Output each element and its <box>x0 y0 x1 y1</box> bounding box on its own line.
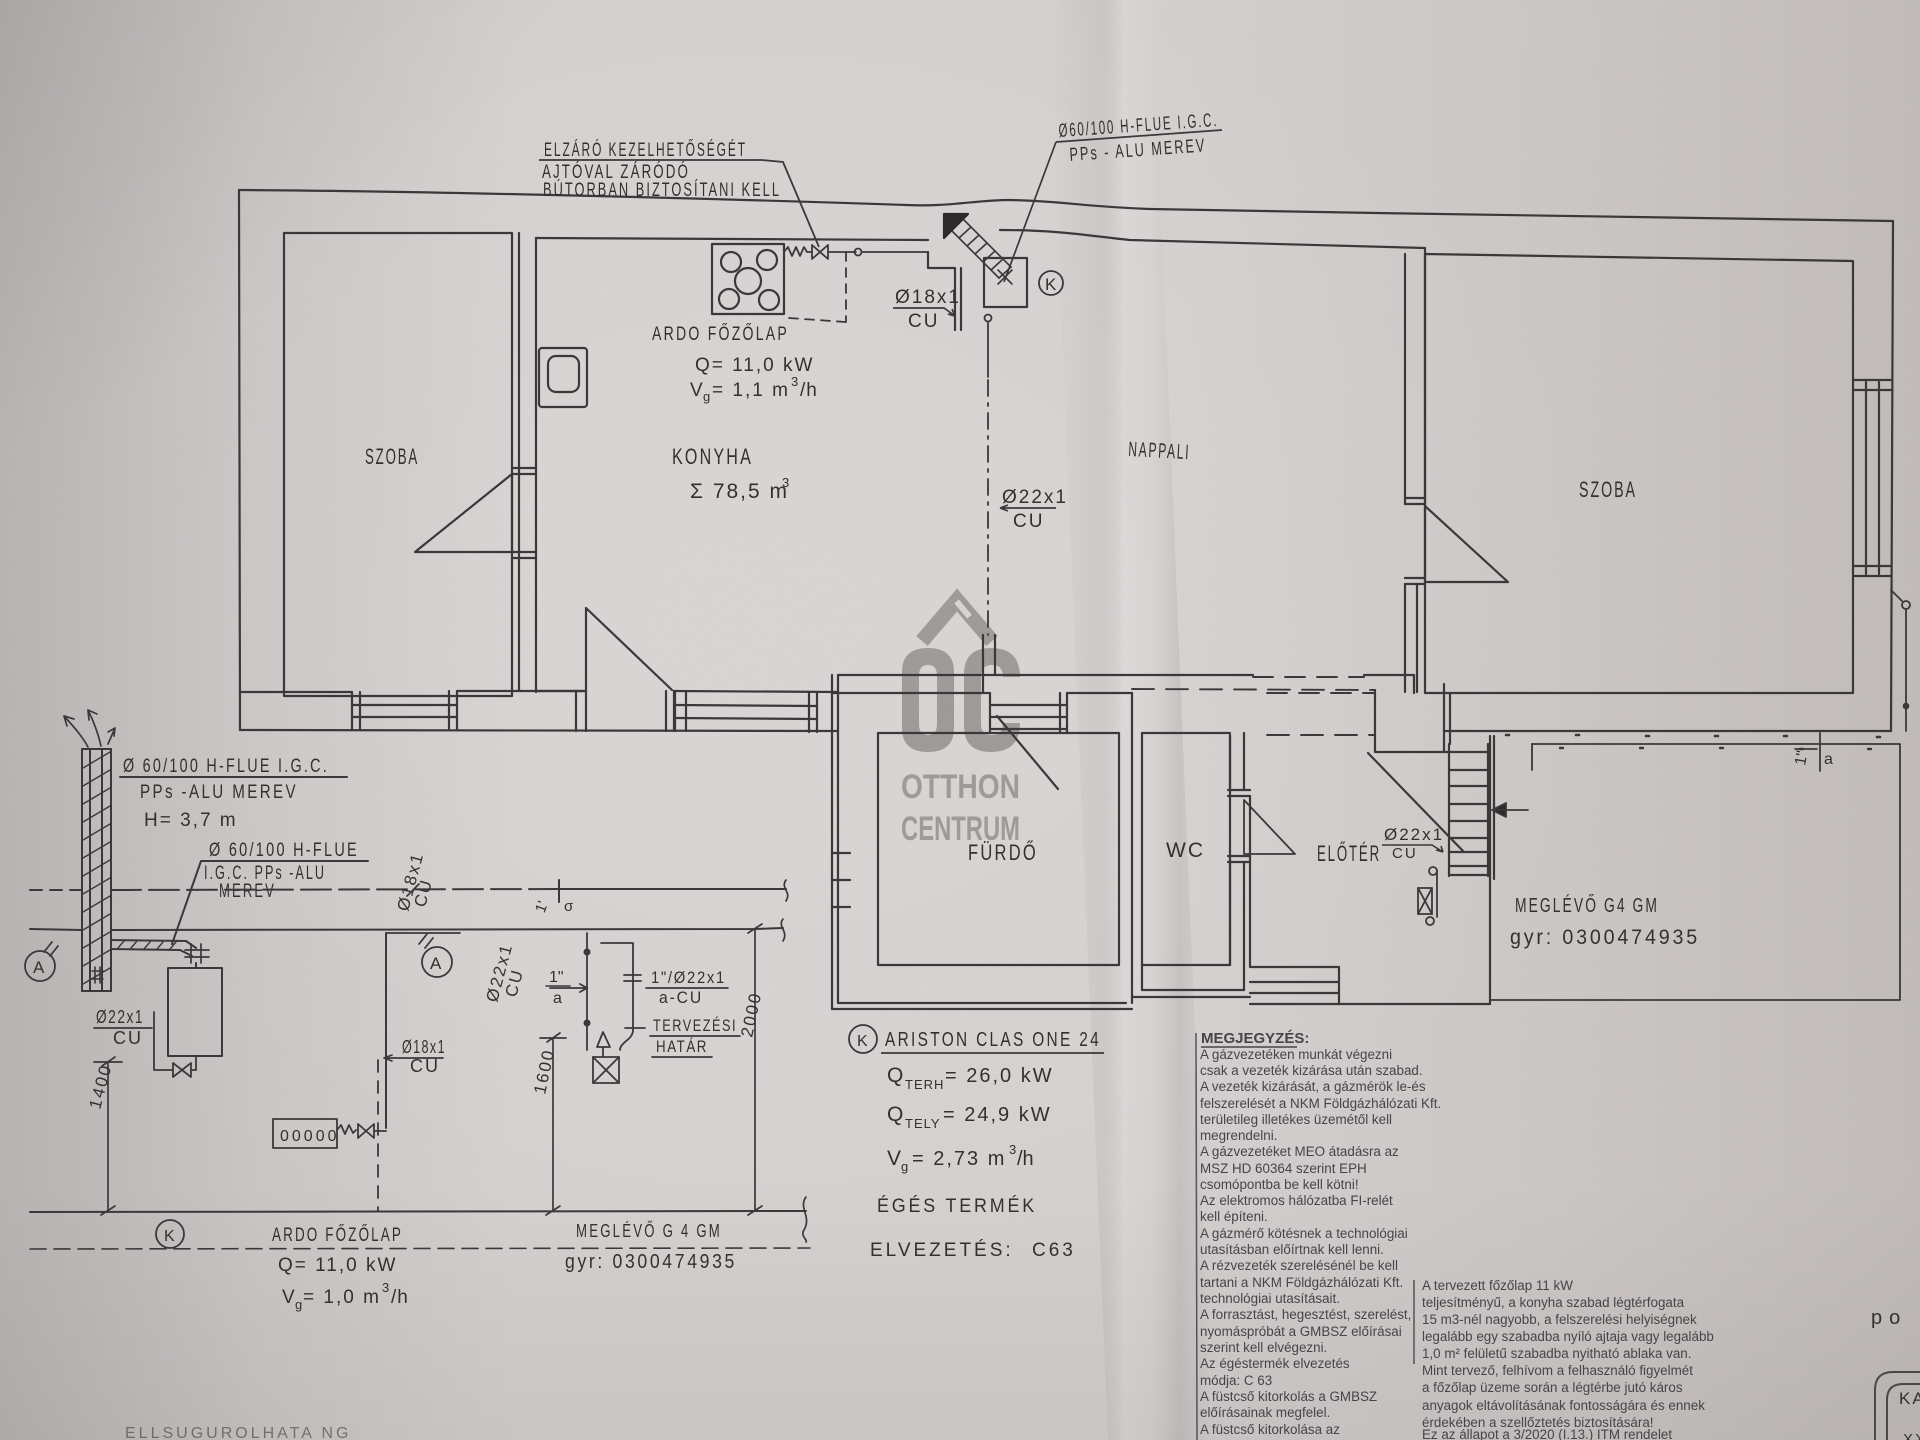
svg-text:po: po <box>1871 1307 1907 1329</box>
svg-text:CU: CU <box>908 311 939 332</box>
svg-text:Ø18x1: Ø18x1 <box>402 1037 446 1057</box>
svg-text:szerint kell elvégezni.: szerint kell elvégezni. <box>1200 1340 1327 1355</box>
svg-text:ARDO FŐZŐLAP: ARDO FŐZŐLAP <box>652 323 789 345</box>
svg-text:A: A <box>430 954 442 973</box>
svg-text:SZOBA: SZOBA <box>365 444 419 469</box>
svg-text:módja: C 63: módja: C 63 <box>1200 1373 1272 1388</box>
svg-text:CU: CU <box>410 1056 440 1076</box>
svg-text:A tervezett főzőlap 11 kW: A tervezett főzőlap 11 kW <box>1422 1278 1573 1293</box>
svg-text:Mint tervező, felhívom a felha: Mint tervező, felhívom a felhasználó fig… <box>1422 1363 1693 1378</box>
svg-text:A gázvezetéken munkát végezni: A gázvezetéken munkát végezni <box>1200 1047 1392 1062</box>
svg-text:A forrasztást, hegesztést, sze: A forrasztást, hegesztést, szerelést, <box>1200 1307 1411 1322</box>
svg-text:CU: CU <box>113 1028 143 1048</box>
svg-text:ELLSUGUROLHATA NG: ELLSUGUROLHATA NG <box>125 1425 351 1440</box>
svg-text:A füstcső kitorkolása az: A füstcső kitorkolása az <box>1200 1422 1340 1437</box>
svg-text:K: K <box>1045 275 1057 294</box>
svg-text:legalább egy szabadba nyíló aj: legalább egy szabadba nyíló ajtaja vagy … <box>1422 1329 1714 1344</box>
svg-text:Ø 60/100 H-FLUE: Ø 60/100 H-FLUE <box>209 840 359 861</box>
svg-text:a főzőlap üzeme során a légtér: a főzőlap üzeme során a légtérbe jutó ká… <box>1422 1380 1683 1395</box>
svg-text:TERH: TERH <box>905 1077 944 1092</box>
svg-text:csomópontba be kell kötni!: csomópontba be kell kötni! <box>1200 1177 1359 1192</box>
svg-text:Az égéstermék elvezetés: Az égéstermék elvezetés <box>1200 1356 1350 1371</box>
svg-text:= 1,0 m: = 1,0 m <box>303 1287 381 1308</box>
svg-text:utasításban előírtnak kell len: utasításban előírtnak kell lenni. <box>1200 1242 1384 1257</box>
svg-text:1": 1" <box>549 969 564 986</box>
svg-text:σ: σ <box>564 898 574 915</box>
svg-text:/h: /h <box>1017 1148 1034 1170</box>
svg-text:A gázmérő kötésnek a technológ: A gázmérő kötésnek a technológiai <box>1200 1226 1408 1241</box>
svg-text:/h: /h <box>800 380 818 401</box>
svg-text:C63: C63 <box>1032 1240 1076 1261</box>
svg-text:H= 3,7 m: H= 3,7 m <box>144 810 238 831</box>
svg-text:= 26,0 kW: = 26,0 kW <box>945 1065 1054 1087</box>
svg-text:/h: /h <box>391 1287 409 1308</box>
svg-text:= 2,73 m: = 2,73 m <box>912 1148 1006 1170</box>
svg-text:területileg illetékes üzemétől: területileg illetékes üzemétől kell <box>1200 1112 1392 1127</box>
svg-text:1": 1" <box>1792 749 1811 766</box>
svg-text:Ø22x1: Ø22x1 <box>1002 487 1068 508</box>
svg-text:előírásainak megfelel.: előírásainak megfelel. <box>1200 1405 1330 1420</box>
svg-text:g: g <box>901 1159 908 1174</box>
svg-text:A rézvezeték szerelésénél be k: A rézvezeték szerelésénél be kell <box>1200 1258 1398 1273</box>
svg-text:ELŐTÉR: ELŐTÉR <box>1317 841 1381 866</box>
svg-text:Ø22x1: Ø22x1 <box>1384 825 1444 844</box>
svg-text:Ø 60/100 H-FLUE I.G.C.: Ø 60/100 H-FLUE I.G.C. <box>123 756 329 777</box>
svg-text:3: 3 <box>1009 1142 1016 1157</box>
svg-text:Σ 78,5 m: Σ 78,5 m <box>690 480 789 503</box>
svg-text:3: 3 <box>782 475 792 490</box>
svg-text:Az elektromos hálózatba FI-rel: Az elektromos hálózatba FI-relét <box>1200 1193 1393 1208</box>
svg-text:A füstcső kitorkolás a GMBSZ: A füstcső kitorkolás a GMBSZ <box>1200 1389 1377 1404</box>
svg-text:a-CU: a-CU <box>659 988 703 1007</box>
svg-text:KONYHA: KONYHA <box>672 444 753 469</box>
svg-text:OTTHON: OTTHON <box>901 768 1020 806</box>
svg-text:PPs -ALU MEREV: PPs -ALU MEREV <box>140 782 298 803</box>
svg-text:a: a <box>1824 751 1833 768</box>
svg-text:MEREV: MEREV <box>219 881 276 902</box>
svg-text:HATÁR: HATÁR <box>656 1037 708 1056</box>
svg-text:teljesítményű, a konyha szabad: teljesítményű, a konyha szabad légtérfog… <box>1422 1295 1685 1310</box>
svg-text:= 1,1 m: = 1,1 m <box>712 380 790 401</box>
svg-text:technológiai utasításait.: technológiai utasításait. <box>1200 1291 1340 1306</box>
svg-text:kell építeni.: kell építeni. <box>1200 1209 1268 1224</box>
svg-text:K: K <box>857 1033 868 1050</box>
svg-text:Q= 11,0 kW: Q= 11,0 kW <box>695 355 814 376</box>
svg-text:A gázvezetéket MEO átadásra az: A gázvezetéket MEO átadásra az <box>1200 1144 1399 1159</box>
svg-text:ELZÁRÓ KEZELHETŐSÉGÉT: ELZÁRÓ KEZELHETŐSÉGÉT <box>544 139 747 161</box>
svg-text:megrendelni.: megrendelni. <box>1200 1128 1277 1143</box>
svg-text:A: A <box>33 958 45 977</box>
svg-text:gyr: 0300474935: gyr: 0300474935 <box>565 1251 737 1273</box>
svg-text:XX: XX <box>1903 1431 1920 1440</box>
svg-text:tartani a NKM Földgázhálózati: tartani a NKM Földgázhálózati Kft. <box>1200 1275 1403 1290</box>
svg-text:WC: WC <box>1166 839 1205 862</box>
svg-text:ARISTON CLAS ONE 24: ARISTON CLAS ONE 24 <box>885 1029 1101 1051</box>
svg-text:= 24,9 kW: = 24,9 kW <box>943 1104 1052 1126</box>
svg-text:Ø22x1: Ø22x1 <box>96 1007 144 1027</box>
svg-text:K: K <box>164 1228 175 1245</box>
svg-text:ARDO FŐZŐLAP: ARDO FŐZŐLAP <box>272 1224 403 1246</box>
svg-text:Ø18x1: Ø18x1 <box>895 287 961 308</box>
svg-text:nyomáspróbát a GMBSZ előírásai: nyomáspróbát a GMBSZ előírásai <box>1200 1324 1402 1339</box>
svg-text:MEGJEGYZÉS:: MEGJEGYZÉS: <box>1201 1030 1309 1047</box>
svg-text:Q: Q <box>887 1103 905 1126</box>
svg-text:TERVEZÉSI: TERVEZÉSI <box>653 1016 737 1035</box>
svg-text:Ez az állapot a 3/2020 (I.13.): Ez az állapot a 3/2020 (I.13.) ITM rende… <box>1422 1427 1672 1440</box>
svg-text:CU: CU <box>1013 511 1044 532</box>
svg-text:gyr: 0300474935: gyr: 0300474935 <box>1510 926 1700 949</box>
svg-text:ELVEZETÉS:: ELVEZETÉS: <box>870 1240 1014 1261</box>
svg-text:SZOBA: SZOBA <box>1579 477 1637 502</box>
svg-text:BÚTORBAN BIZTOSÍTANI KELL: BÚTORBAN BIZTOSÍTANI KELL <box>543 179 781 201</box>
svg-text:Q: Q <box>887 1064 905 1087</box>
svg-text:MEGLÉVŐ G4 GM: MEGLÉVŐ G4 GM <box>1515 894 1659 917</box>
svg-text:MEGLÉVŐ G 4 GM: MEGLÉVŐ G 4 GM <box>576 1220 722 1241</box>
svg-text:NAPPALI: NAPPALI <box>1128 438 1191 464</box>
svg-text:A vezeték kizárását, a gázmérö: A vezeték kizárását, a gázmérök le-és <box>1200 1079 1426 1094</box>
svg-text:a: a <box>553 990 562 1007</box>
svg-text:Q= 11,0 kW: Q= 11,0 kW <box>278 1255 397 1276</box>
svg-text:MSZ HD 60364 szerint EPH: MSZ HD 60364 szerint EPH <box>1200 1161 1367 1176</box>
svg-text:15 m3-nél nagyobb, a felszerel: 15 m3-nél nagyobb, a felszerelési helyis… <box>1422 1312 1697 1327</box>
svg-text:csak a vezeték kizárása után s: csak a vezeték kizárása után szabad. <box>1200 1063 1423 1078</box>
svg-text:1"/Ø22x1: 1"/Ø22x1 <box>651 968 726 987</box>
svg-text:anyagok eltávolításának fontos: anyagok eltávolításának fontosságára és … <box>1422 1398 1705 1413</box>
svg-text:CU: CU <box>1392 845 1418 862</box>
svg-text:felszerelését a NKM Földgázhál: felszerelését a NKM Földgázhálózati Kft. <box>1200 1096 1441 1111</box>
svg-text:ÉGÉS TERMÉK: ÉGÉS TERMÉK <box>877 1196 1037 1217</box>
svg-text:KA: KA <box>1899 1389 1920 1408</box>
svg-text:00000: 00000 <box>280 1128 340 1145</box>
svg-text:TELY: TELY <box>905 1116 941 1131</box>
svg-text:FÜRDŐ: FÜRDŐ <box>968 840 1038 865</box>
svg-text:1,0 m² felületű szabadba nyith: 1,0 m² felületű szabadba nyitható ablaka… <box>1422 1346 1691 1361</box>
